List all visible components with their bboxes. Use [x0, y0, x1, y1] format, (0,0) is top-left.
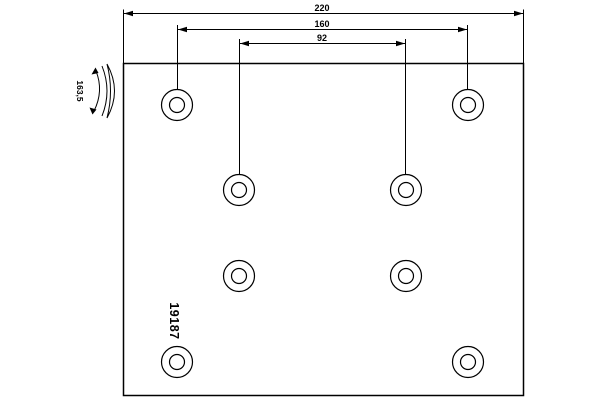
- arrowhead-right-icon: [514, 11, 523, 16]
- dimension-label-inner-hole-spacing: 92: [317, 33, 327, 43]
- rivet-hole-row3-left: [224, 261, 255, 292]
- lining-cross-section-icon: [107, 64, 115, 118]
- arrowhead-right-icon: [396, 41, 405, 46]
- radius-label: 163,5: [75, 80, 85, 102]
- part-number-label: 19187: [167, 302, 181, 339]
- rivet-hole-row3-right: [391, 261, 422, 292]
- inner-arc-icon: [102, 66, 107, 116]
- arrowhead-left-icon: [124, 11, 133, 16]
- arrowhead-left-icon: [178, 27, 187, 32]
- curvature-arrowhead-top-icon: [92, 68, 99, 75]
- curvature-symbol: [90, 64, 115, 118]
- technical-drawing-canvas: 220 160 92 163,5: [0, 0, 600, 400]
- rivet-hole-row2-left: [224, 175, 255, 206]
- rivet-hole-row2-right: [391, 175, 422, 206]
- rivet-hole-bottom-right: [453, 347, 484, 378]
- arrowhead-right-icon: [458, 27, 467, 32]
- arrowhead-left-icon: [240, 41, 249, 46]
- rivet-hole-top-left: [162, 90, 193, 121]
- rivet-hole-top-right: [453, 90, 484, 121]
- dimension-label-overall-width: 220: [314, 3, 329, 13]
- rivet-hole-bottom-left: [162, 347, 193, 378]
- brake-lining-drawing: 220 160 92 163,5: [0, 0, 600, 400]
- dimension-label-outer-hole-spacing: 160: [314, 19, 329, 29]
- curvature-arrow-icon: [94, 71, 100, 111]
